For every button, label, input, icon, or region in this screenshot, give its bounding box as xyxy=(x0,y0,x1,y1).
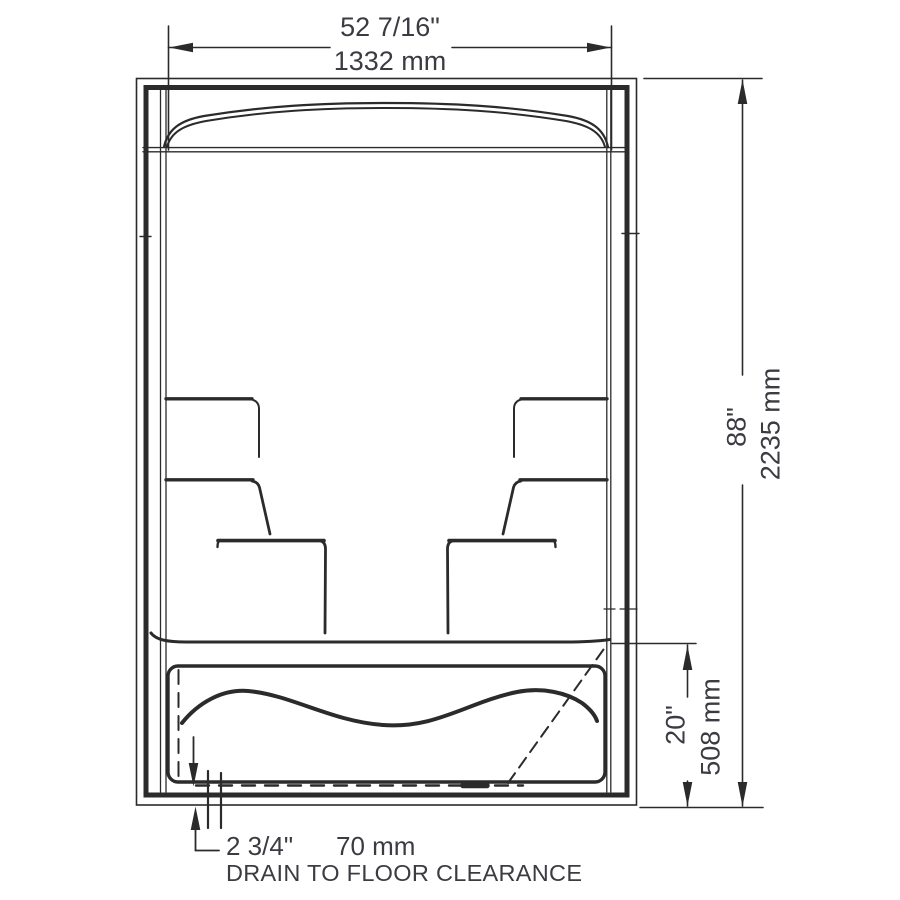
tub-floor-line xyxy=(151,633,610,642)
width-dimension-metric-label: 1332 mm xyxy=(334,48,447,75)
arrow-up-icon xyxy=(683,646,693,671)
right-seat xyxy=(448,540,556,633)
arrow-down-icon xyxy=(683,782,693,806)
right-upper-shelf xyxy=(514,399,607,457)
arrow-down-icon xyxy=(738,782,748,807)
base-height-imperial-label: 20" xyxy=(663,705,690,745)
arrow-right-icon xyxy=(587,43,611,53)
base-height-metric-label: 508 mm xyxy=(698,678,725,776)
dome-top xyxy=(143,103,628,152)
width-dimension-imperial-label: 52 7/16" xyxy=(340,14,440,41)
left-mid-shelf xyxy=(166,480,270,534)
height-dimension-metric-label: 2235 mm xyxy=(758,368,785,481)
drain-clearance-caption: DRAIN TO FLOOR CLEARANCE xyxy=(226,862,582,886)
height-dimension-imperial-label: 88" xyxy=(724,407,751,447)
drain-clearance-metric-label: 70 mm xyxy=(336,833,415,859)
technical-drawing-shower-unit: 52 7/16" 1332 mm 88" 2235 mm 20" 508 mm … xyxy=(0,0,900,900)
drain-clearance-imperial-label: 2 3/4" xyxy=(226,833,293,859)
arrow-left-icon xyxy=(169,43,193,53)
apron-panel xyxy=(168,666,605,782)
drain-hidden-lines xyxy=(196,646,606,828)
right-mid-shelf xyxy=(503,480,607,534)
left-upper-shelf xyxy=(166,399,259,457)
arrow-up-icon xyxy=(738,80,748,105)
arrow-up-icon xyxy=(191,807,201,831)
apron-wave-line xyxy=(182,690,597,725)
left-seat xyxy=(218,540,326,633)
